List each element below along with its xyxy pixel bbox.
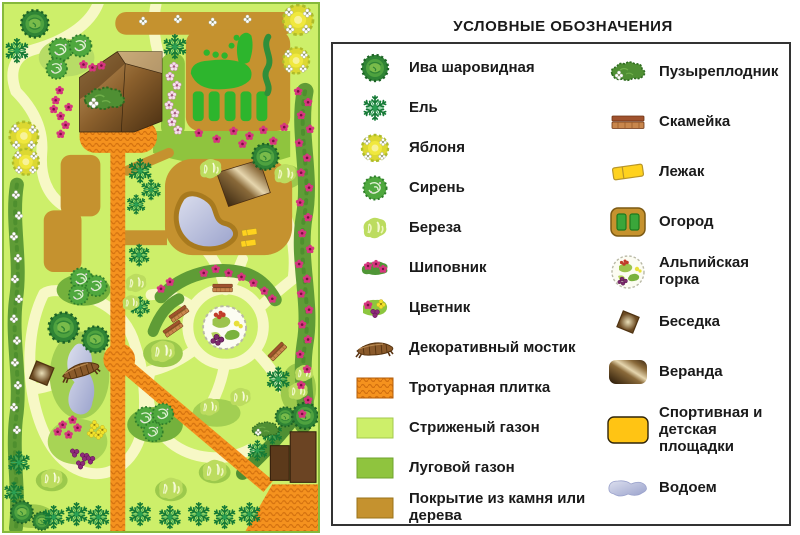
legend-label: Покрытие из камня или дерева [409, 491, 595, 525]
legend-item: Пузыреплодник [605, 55, 789, 89]
legend-title: УСЛОВНЫЕ ОБОЗНАЧЕНИЯ [331, 18, 795, 35]
ninebark-icon [605, 55, 651, 89]
legend-label: Спортивная и детская площадки [659, 405, 789, 455]
legend-item: Береза [349, 211, 595, 245]
legend-item: Сирень [349, 171, 595, 205]
legend-item: Веранда [605, 355, 789, 389]
legend-label: Альпийская горка [659, 255, 789, 289]
legend-item: Огород [605, 205, 789, 239]
legend-item: Декоративный мостик [349, 331, 595, 365]
legend-item: Яблоня [349, 131, 595, 165]
apple [10, 122, 38, 150]
legend-label: Луговой газон [409, 460, 515, 477]
legend-label: Шиповник [409, 260, 487, 277]
legend-item: Альпийская горка [605, 255, 789, 289]
paving-icon [349, 371, 401, 405]
legend-item: Водоем [605, 471, 789, 505]
gazebo-icon [605, 305, 651, 339]
legend-item: Ива шаровидная [349, 51, 595, 85]
willow [49, 313, 79, 343]
legend-item: Цветник [349, 291, 595, 325]
alpine-icon [605, 255, 651, 289]
legend-item: Беседка [605, 305, 789, 339]
lilac-icon [349, 171, 401, 205]
legend-label: Водоем [659, 480, 717, 497]
legend-item: Стриженый газон [349, 411, 595, 445]
garden-plan-svg [4, 4, 318, 531]
legend-column-right: Пузыреплодник Скамейка Лежак Огород Альп… [595, 44, 789, 524]
lilac [70, 35, 92, 57]
willow [11, 501, 33, 523]
legend-column-left: Ива шаровидная Ель Яблоня Сирень Береза … [333, 44, 595, 524]
lilac [86, 276, 107, 297]
pond-icon [605, 471, 651, 505]
legend-item: Скамейка [605, 105, 789, 139]
legend-item: Шиповник [349, 251, 595, 285]
stone-icon [349, 491, 401, 525]
willow [21, 10, 48, 37]
lilac [46, 58, 67, 79]
legend-label: Огород [659, 214, 714, 231]
legend-label: Цветник [409, 300, 470, 317]
willow-icon [349, 51, 401, 85]
lilac [143, 422, 162, 441]
lounger-icon [605, 155, 651, 189]
apple [283, 5, 313, 35]
legend-item: Тротуарная плитка [349, 371, 595, 405]
legend-label: Береза [409, 220, 461, 237]
spruce-icon [349, 91, 401, 125]
rosehip-icon [349, 251, 401, 285]
bench-icon [605, 105, 651, 139]
legend-label: Ива шаровидная [409, 60, 535, 77]
legend-item: Лежак [605, 155, 789, 189]
apple [283, 48, 309, 74]
willow [252, 144, 278, 170]
apple-icon [349, 131, 401, 165]
garden-icon [605, 205, 651, 239]
lilac [69, 285, 88, 304]
legend-item: Спортивная и детская площадки [605, 405, 789, 455]
legend-label: Пузыреплодник [659, 64, 778, 81]
playground-icon [605, 413, 651, 447]
legend-label: Лежак [659, 164, 704, 181]
legend-label: Веранда [659, 364, 723, 381]
legend-label: Ель [409, 100, 438, 117]
lawn_trim-icon [349, 411, 401, 445]
bridge-icon [349, 331, 401, 365]
lilac [153, 404, 174, 425]
legend-label: Декоративный мостик [409, 340, 576, 357]
legend-label: Стриженый газон [409, 420, 540, 437]
lawn_meadow-icon [349, 451, 401, 485]
legend-label: Яблоня [409, 140, 465, 157]
legend-label: Тротуарная плитка [409, 380, 550, 397]
apple [13, 149, 39, 175]
legend-item: Ель [349, 91, 595, 125]
willow [83, 327, 109, 353]
shed-small [270, 446, 289, 481]
veranda-icon [605, 355, 651, 389]
legend-panel: Ива шаровидная Ель Яблоня Сирень Береза … [331, 42, 791, 526]
alpine [203, 306, 246, 349]
legend-label: Сирень [409, 180, 465, 197]
legend-label: Беседка [659, 314, 720, 331]
garden-plan-map [2, 2, 320, 533]
birch-icon [349, 211, 401, 245]
bench [213, 284, 233, 292]
lilac [49, 38, 72, 61]
legend-label: Скамейка [659, 114, 730, 131]
legend-item: Покрытие из камня или дерева [349, 491, 595, 525]
legend-item: Луговой газон [349, 451, 595, 485]
shed-large [290, 432, 316, 483]
flowerbed-icon [349, 291, 401, 325]
